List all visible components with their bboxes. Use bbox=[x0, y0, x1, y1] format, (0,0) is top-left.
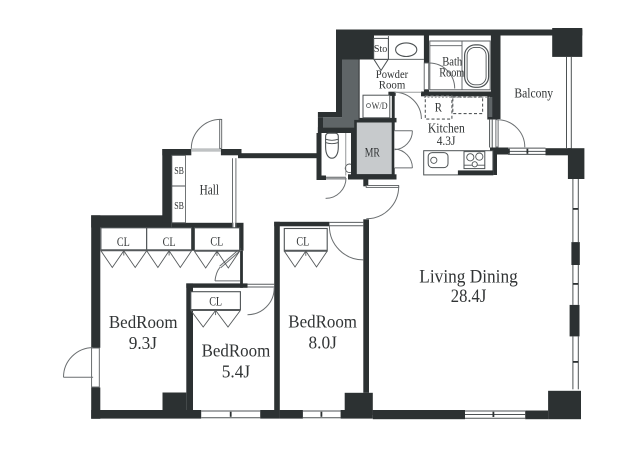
svg-text:Living Dining: Living Dining bbox=[419, 266, 518, 287]
svg-text:Room: Room bbox=[379, 79, 406, 91]
svg-text:SB: SB bbox=[174, 201, 184, 212]
svg-text:8.0J: 8.0J bbox=[309, 333, 337, 353]
svg-text:4.3J: 4.3J bbox=[437, 133, 456, 148]
svg-text:BedRoom: BedRoom bbox=[109, 312, 178, 332]
svg-text:CL: CL bbox=[210, 234, 223, 249]
svg-text:28.4J: 28.4J bbox=[451, 286, 487, 307]
svg-text:CL: CL bbox=[209, 293, 222, 308]
svg-text:CL: CL bbox=[117, 234, 130, 249]
svg-text:Balcony: Balcony bbox=[514, 87, 553, 102]
svg-text:CL: CL bbox=[296, 234, 309, 249]
svg-text:R: R bbox=[435, 100, 443, 114]
svg-text:BedRoom: BedRoom bbox=[202, 340, 271, 360]
svg-text:Sto: Sto bbox=[374, 44, 387, 55]
svg-text:W/D: W/D bbox=[372, 102, 388, 112]
svg-text:BedRoom: BedRoom bbox=[288, 311, 357, 331]
svg-text:Hall: Hall bbox=[200, 183, 219, 199]
svg-text:MR: MR bbox=[365, 146, 381, 160]
svg-text:Room: Room bbox=[439, 64, 464, 79]
svg-text:9.3J: 9.3J bbox=[129, 333, 157, 353]
svg-text:5.4J: 5.4J bbox=[222, 361, 250, 381]
svg-text:CL: CL bbox=[163, 234, 176, 249]
svg-text:SB: SB bbox=[174, 166, 184, 177]
